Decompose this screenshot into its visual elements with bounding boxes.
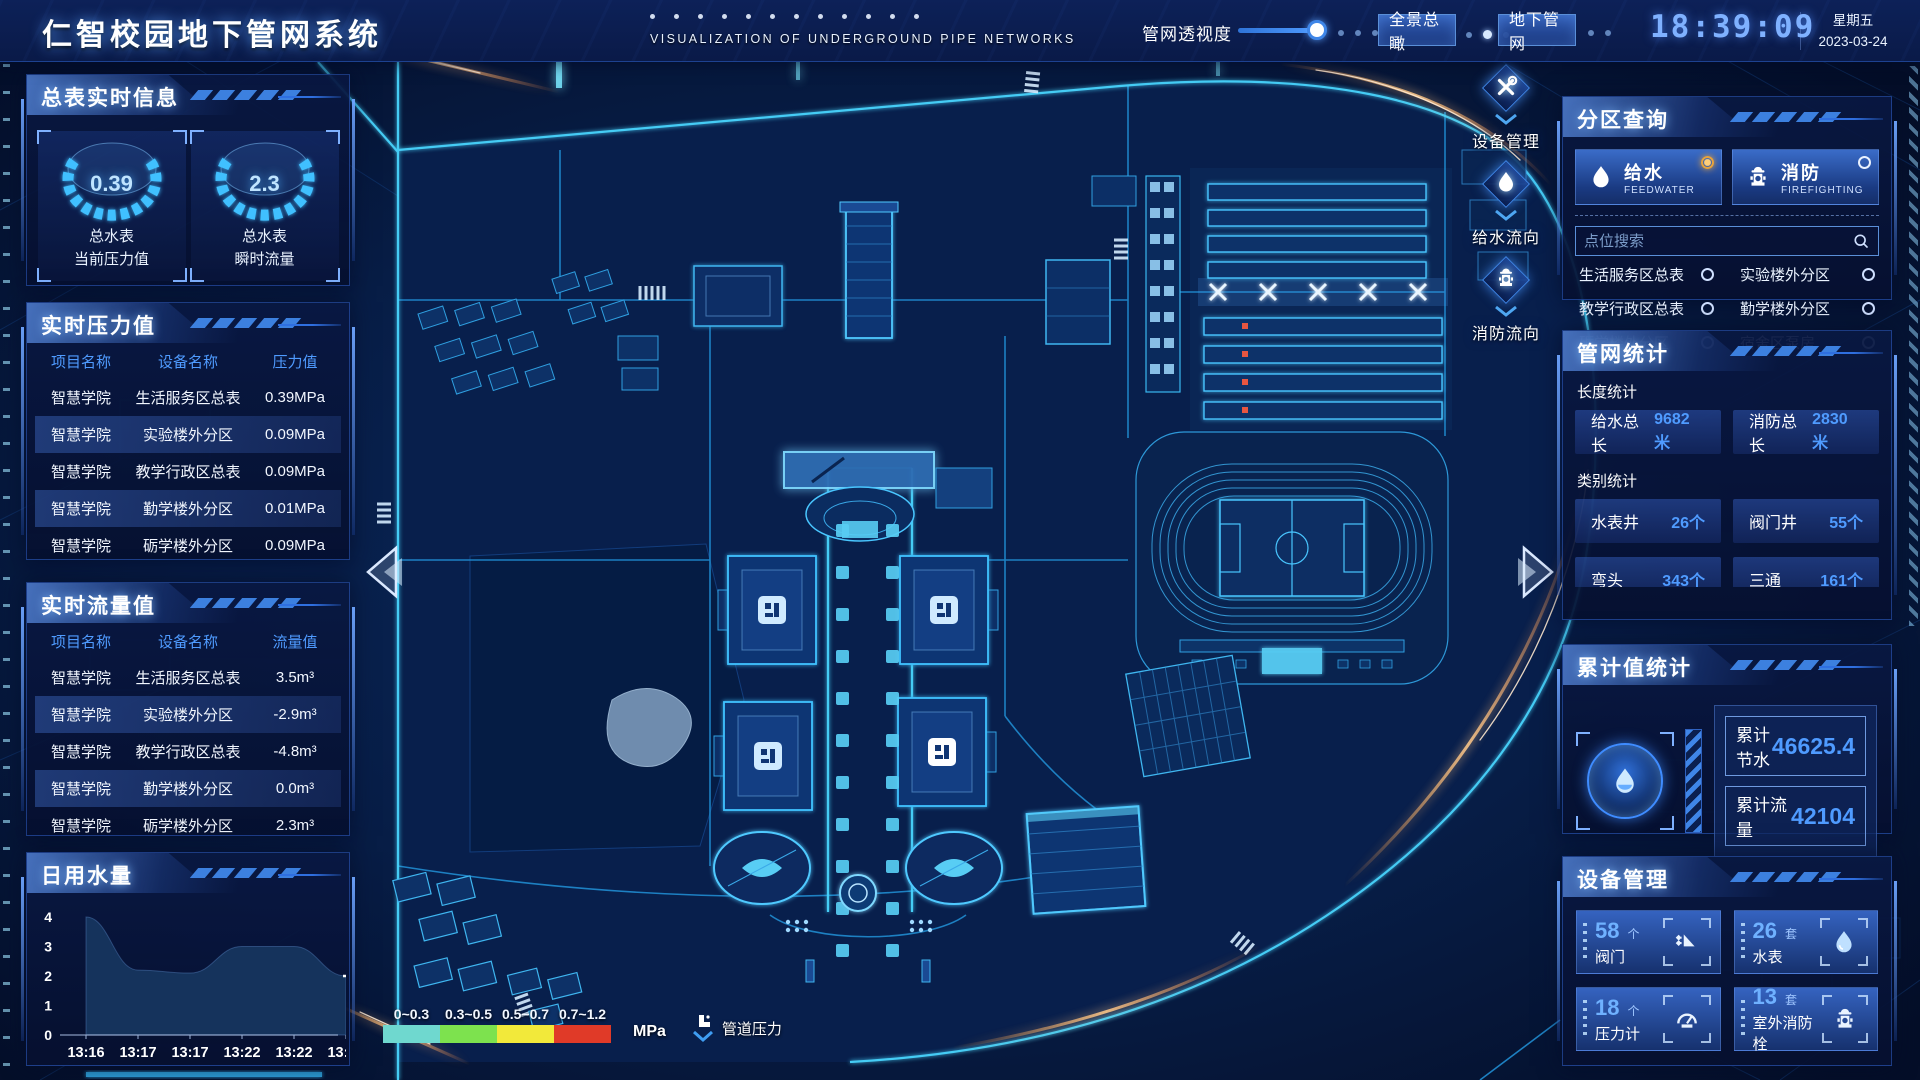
table-row[interactable]: 智慧学院实验楼外分区0.09MPa (35, 416, 341, 453)
x-tick-label: 13:23 (327, 1045, 346, 1061)
header-divider (1800, 12, 1801, 50)
app-title: 仁智校园地下管网系统 (42, 10, 382, 54)
radio-icon[interactable] (1862, 302, 1875, 315)
solar-array (1126, 655, 1250, 776)
hydrant-icon (1494, 266, 1518, 290)
gauge-pressure: 0.39 总水表当前压力值 (38, 131, 186, 281)
weekday: 星期五 (1808, 11, 1898, 32)
x-tick-label: 13:16 (67, 1045, 104, 1061)
hazard-divider (1685, 729, 1702, 833)
table-row[interactable]: 智慧学院砺学楼外分区0.09MPa (35, 527, 341, 557)
x-tick-label: 13:22 (275, 1045, 312, 1061)
legend-unit: MPa (633, 1023, 666, 1041)
stat-cell: 弯头343个 (1575, 557, 1721, 587)
point-search-box[interactable] (1575, 226, 1879, 256)
table-row[interactable]: 智慧学院生活服务区总表3.5m³ (35, 659, 341, 696)
panel-daily-water-usage: 日用水量 4321013:1613:1713:1713:2213:2213:23… (26, 852, 350, 1066)
dashed-divider (1575, 215, 1879, 216)
gymnasium (1027, 806, 1146, 914)
device-card-valves[interactable]: 58个 阀门 (1576, 910, 1721, 974)
panel-realtime-flow: 实时流量值 项目名称设备名称流量值 智慧学院生活服务区总表3.5m³ 智慧学院实… (26, 582, 350, 836)
chevron-down-icon (1493, 113, 1519, 126)
stat-cell: 阀门井55个 (1733, 499, 1879, 543)
slash-decoration (194, 598, 297, 608)
radio-icon[interactable] (1701, 268, 1714, 281)
tab-feedwater[interactable]: 给水FEEDWATER (1575, 149, 1722, 205)
panel-title: 日用水量 (41, 860, 133, 890)
stat-cell: 给水总长9682米 (1575, 410, 1721, 454)
zone-item[interactable]: 教学行政区总表 (1579, 298, 1714, 319)
cumulative-row: 累计流量42104 (1725, 786, 1866, 846)
tab-firefighting[interactable]: 消防FIREFIGHTING (1732, 149, 1879, 205)
tab-radio[interactable] (1701, 156, 1714, 169)
water-drop-icon (1610, 766, 1640, 796)
dorm-road-band (1198, 278, 1448, 306)
legend-segment: 0.3~0.5 (440, 1006, 497, 1043)
daily-water-chart: 4321013:1613:1713:1713:2213:2213:232 (30, 897, 346, 1065)
device-management-map-button[interactable] (1482, 64, 1530, 112)
search-icon[interactable] (1852, 232, 1870, 250)
panel-title: 实时流量值 (41, 590, 156, 620)
hydrant-icon (1745, 164, 1771, 190)
table-row[interactable]: 智慧学院实验楼外分区-2.9m³ (35, 696, 341, 733)
zone-item[interactable]: 生活服务区总表 (1579, 264, 1714, 285)
x-tick-label: 13:17 (119, 1045, 156, 1061)
table-row[interactable]: 智慧学院勤学楼外分区0.0m³ (35, 770, 341, 807)
y-tick-label: 3 (44, 939, 52, 955)
legend-segment: 0.7~1.2 (554, 1006, 611, 1043)
legend-segment: 0.5~0.7 (497, 1006, 554, 1043)
water-drop-icon (1588, 164, 1614, 190)
table-header: 项目名称设备名称流量值 (35, 623, 341, 659)
slider-knob[interactable] (1307, 20, 1327, 40)
panel-master-meter-info: 总表实时信息 0.39 总水表当前压力值 2.3 总水表瞬时流量 (26, 74, 350, 286)
tab-radio[interactable] (1858, 156, 1871, 169)
slash-decoration (194, 318, 297, 328)
module-stack-building (1146, 176, 1180, 392)
panel-title: 实时压力值 (41, 310, 156, 340)
wrench-icon (1493, 74, 1519, 100)
category-stats-label: 类别统计 (1563, 460, 1891, 499)
pressure-gauge-icon (1674, 1006, 1700, 1032)
x-tick-label: 13:17 (171, 1045, 208, 1061)
panel-zone-query: 分区查询 给水FEEDWATER 消防FIREFIGHTING 生活服务区总表 … (1562, 96, 1892, 300)
stadium-entrance (1262, 648, 1322, 674)
stat-cell: 三通161个 (1733, 557, 1879, 587)
device-card-water-meters[interactable]: 26套 水表 (1734, 910, 1879, 974)
y-tick-label: 2 (44, 968, 52, 984)
firefighting-flow-map-button[interactable] (1482, 256, 1530, 304)
slider-fill (1238, 28, 1317, 33)
bottom-accent-bar (86, 1072, 322, 1077)
table-row[interactable]: 智慧学院砺学楼外分区2.3m³ (35, 807, 341, 833)
cumulative-water-icon-frame (1577, 733, 1673, 829)
radio-icon[interactable] (1701, 302, 1714, 315)
tool-label: 设备管理 (1456, 128, 1556, 152)
radio-icon[interactable] (1862, 268, 1875, 281)
panel-realtime-pressure: 实时压力值 项目名称设备名称压力值 智慧学院生活服务区总表0.39MPa 智慧学… (26, 302, 350, 560)
gauge-value: 2.3 (191, 171, 339, 197)
slash-decoration (1734, 346, 1837, 356)
water-drop-icon (1494, 170, 1518, 194)
gauge-label: 总水表瞬时流量 (191, 226, 339, 271)
device-card-pressure-gauges[interactable]: 18个 压力计 (1576, 987, 1721, 1051)
panorama-overview-button[interactable]: 全景总瞰 (1378, 14, 1456, 46)
slash-decoration (1734, 872, 1837, 882)
gauge-label: 总水表当前压力值 (38, 226, 186, 271)
table-row[interactable]: 智慧学院勤学楼外分区0.01MPa (35, 490, 341, 527)
panel-title: 分区查询 (1577, 104, 1669, 134)
title-dots (650, 14, 919, 19)
y-tick-label: 1 (44, 998, 52, 1014)
dot-separator (1588, 30, 1611, 36)
transparency-slider-label: 管网透视度 (1142, 20, 1232, 45)
panel-title: 总表实时信息 (41, 82, 179, 112)
right-edge-hazard-strip (1909, 66, 1918, 626)
panel-title: 管网统计 (1577, 338, 1669, 368)
pipe-pressure-legend: 0~0.3 0.3~0.5 0.5~0.7 0.7~1.2 MPa 管道压力 (383, 1006, 782, 1043)
clock-time: 18:39:09 (1650, 9, 1796, 45)
panel-pipe-network-stats: 管网统计 长度统计 给水总长9682米 消防总长2830米 类别统计 水表井26… (1562, 330, 1892, 620)
cumulative-row: 累计节水46625.4 (1725, 716, 1866, 776)
chevron-down-icon (1493, 209, 1519, 222)
transparency-slider[interactable] (1238, 28, 1324, 33)
slash-decoration (1734, 660, 1837, 670)
clock-date: 星期五 2023-03-24 (1808, 11, 1898, 53)
slash-decoration (1734, 112, 1837, 122)
tool-label: 给水流向 (1456, 224, 1556, 248)
zone-item[interactable]: 实验楼外分区 (1740, 264, 1875, 285)
feedwater-flow-map-button[interactable] (1482, 160, 1530, 208)
slash-decoration (194, 868, 297, 878)
stat-cell: 水表井26个 (1575, 499, 1721, 543)
table-row[interactable]: 智慧学院教学行政区总表-4.8m³ (35, 733, 341, 770)
panel-title: 累计值统计 (1577, 652, 1692, 682)
dot-separator (1338, 30, 1378, 36)
table-row[interactable]: 智慧学院教学行政区总表0.09MPa (35, 453, 341, 490)
table-header: 项目名称设备名称压力值 (35, 343, 341, 379)
tool-label: 消防流向 (1456, 320, 1556, 344)
water-drop-icon (1831, 929, 1857, 955)
y-tick-label: 0 (44, 1027, 52, 1043)
chevron-down-icon (1493, 305, 1519, 318)
slash-decoration (194, 90, 297, 100)
top-header-bar: 仁智校园地下管网系统 VISUALIZATION OF UNDERGROUND … (0, 0, 1920, 62)
gauge-flow: 2.3 总水表瞬时流量 (191, 131, 339, 281)
area-series (86, 917, 346, 1035)
valve-icon (1674, 929, 1700, 955)
search-input[interactable] (1584, 233, 1852, 250)
length-stats-label: 长度统计 (1563, 371, 1891, 410)
underground-network-button[interactable]: 地下管网 (1498, 14, 1576, 46)
table-row[interactable]: 智慧学院生活服务区总表0.39MPa (35, 379, 341, 416)
stat-cell: 消防总长2830米 (1733, 410, 1879, 454)
panel-cumulative-stats: 累计值统计 累计节水46625.4 累计流量42104 (1562, 644, 1892, 834)
lake-field (470, 544, 744, 852)
gauge-value: 0.39 (38, 171, 186, 197)
panel-device-management: 设备管理 58个 阀门 26套 水表 18个 压力计 (1562, 856, 1892, 1066)
date: 2023-03-24 (1808, 32, 1898, 53)
app-subtitle: VISUALIZATION OF UNDERGROUND PIPE NETWOR… (650, 32, 1076, 46)
left-edge-ticks (3, 64, 10, 1080)
x-tick-label: 13:22 (223, 1045, 260, 1061)
hydrant-icon (1832, 1006, 1858, 1032)
legend-segment: 0~0.3 (383, 1006, 440, 1043)
device-card-outdoor-hydrants[interactable]: 13套 室外消防栓 (1734, 987, 1879, 1051)
pipe-pressure-icon (692, 1013, 714, 1043)
panel-title: 设备管理 (1577, 864, 1669, 894)
pipe-pressure-toggle[interactable]: 管道压力 (692, 1013, 782, 1043)
y-tick-label: 4 (44, 909, 52, 925)
zone-item[interactable]: 勤学楼外分区 (1740, 298, 1875, 319)
